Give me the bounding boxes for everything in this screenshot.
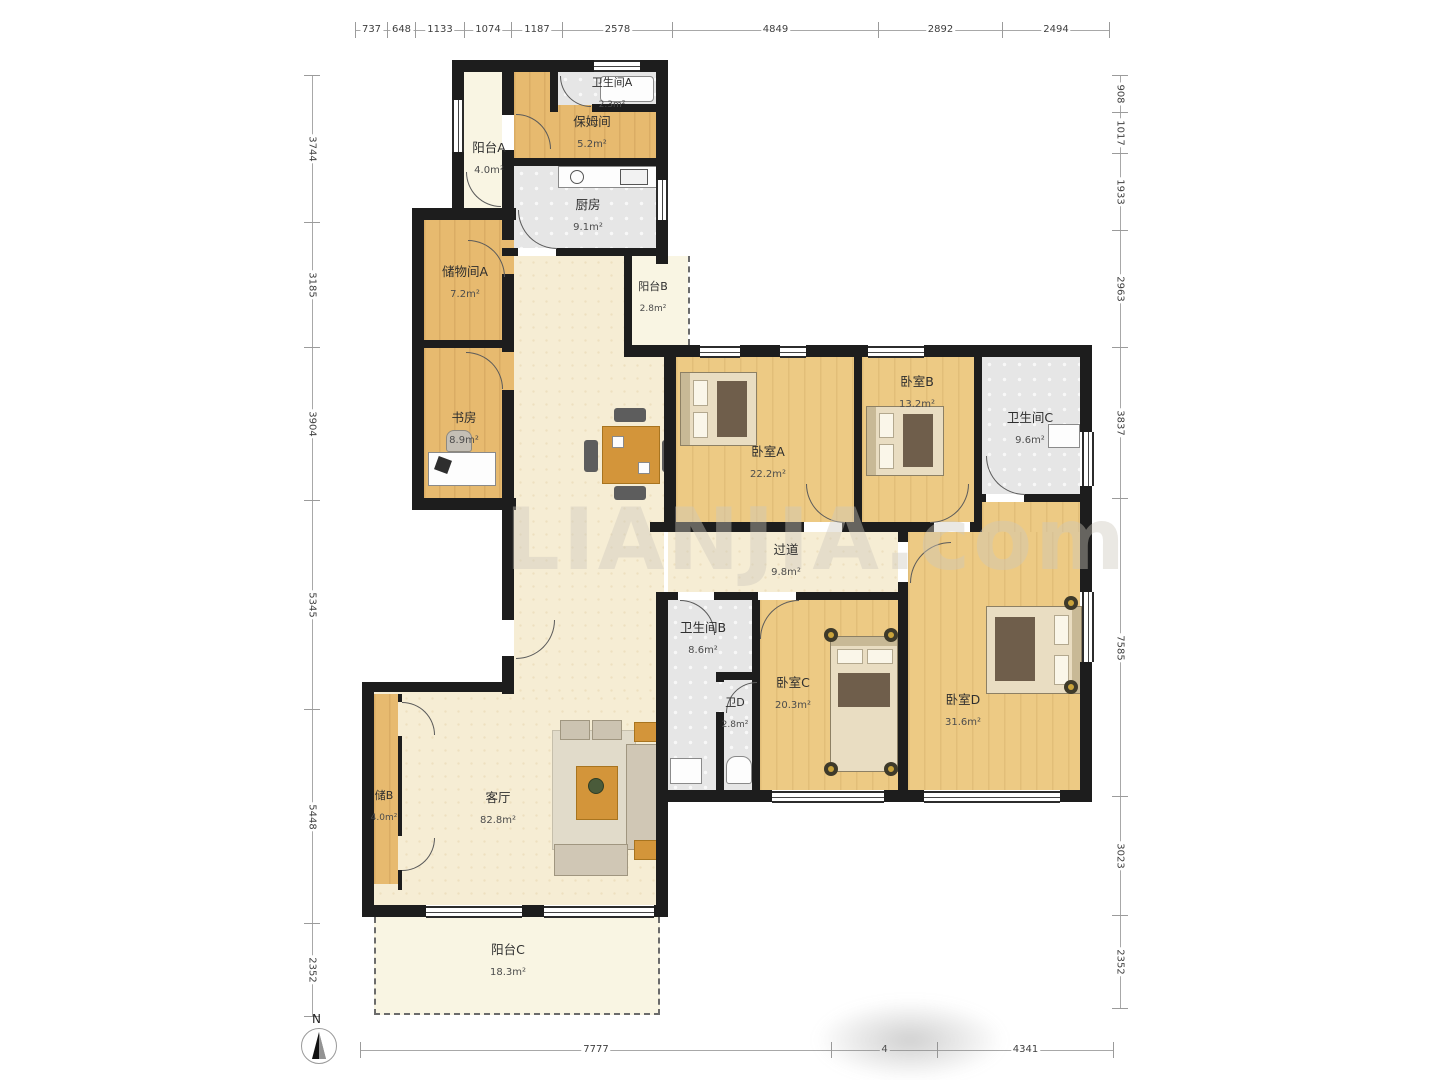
dim-label: 737 bbox=[360, 24, 383, 35]
room-label-woshi-d: 卧室D31.6m² bbox=[945, 689, 981, 731]
window bbox=[772, 791, 884, 803]
dim-segment: 737 bbox=[356, 22, 387, 38]
wall bbox=[974, 345, 982, 502]
dim-label: 2494 bbox=[1041, 24, 1070, 35]
ruler-top: 737 648 1133 1074 1187 2578 4849 2892 24… bbox=[355, 22, 1110, 38]
bed-icon bbox=[680, 372, 757, 446]
chair-icon bbox=[614, 486, 646, 500]
dim-label: 3744 bbox=[307, 134, 318, 163]
wall bbox=[714, 592, 758, 600]
wall bbox=[412, 498, 516, 510]
ottoman-icon bbox=[592, 720, 622, 740]
dim-label: 2352 bbox=[307, 955, 318, 984]
wall bbox=[398, 736, 402, 836]
dim-segment: 3023 bbox=[1112, 796, 1128, 915]
stove-icon bbox=[620, 169, 648, 185]
wall bbox=[522, 905, 544, 917]
wall bbox=[550, 60, 558, 112]
dim-segment: 1187 bbox=[511, 22, 562, 38]
wall bbox=[502, 60, 514, 115]
room-label-baomujian: 保姆间5.2m² bbox=[573, 111, 611, 153]
floor-plan-canvas: 737 648 1133 1074 1187 2578 4849 2892 24… bbox=[0, 0, 1440, 1080]
dim-segment: 3837 bbox=[1112, 347, 1128, 498]
dim-segment: 2892 bbox=[878, 22, 1002, 38]
dim-label: 7585 bbox=[1115, 633, 1126, 662]
dim-label: 3185 bbox=[307, 270, 318, 299]
dim-label: 3904 bbox=[307, 409, 318, 438]
dim-label: 3023 bbox=[1115, 841, 1126, 870]
wall bbox=[624, 345, 700, 357]
room-label-wei-d: 卫D2.8m² bbox=[722, 691, 749, 733]
wall bbox=[398, 870, 402, 890]
wall bbox=[556, 248, 668, 256]
dim-label: 1017 bbox=[1115, 118, 1126, 147]
dim-label: 4849 bbox=[761, 24, 790, 35]
sofa-icon bbox=[626, 744, 660, 850]
bed-icon bbox=[866, 406, 944, 476]
wall bbox=[884, 790, 924, 802]
wall bbox=[362, 905, 426, 917]
bedpost-icon bbox=[884, 762, 898, 776]
dim-segment: 3904 bbox=[304, 347, 320, 500]
dim-label: 2963 bbox=[1115, 274, 1126, 303]
window bbox=[426, 906, 522, 918]
window bbox=[594, 60, 640, 72]
wall bbox=[1080, 662, 1092, 802]
bedpost-icon bbox=[824, 628, 838, 642]
window bbox=[868, 346, 924, 358]
wall bbox=[1060, 790, 1092, 802]
bedpost-icon bbox=[824, 762, 838, 776]
wall bbox=[842, 522, 934, 532]
room-label-keting: 客厅82.8m² bbox=[480, 787, 516, 829]
room-label-chuwujian-a: 储物间A7.2m² bbox=[442, 261, 488, 303]
plant-icon bbox=[588, 778, 604, 794]
dim-label: 648 bbox=[390, 24, 413, 35]
wall bbox=[796, 592, 898, 600]
window bbox=[544, 906, 654, 918]
room-label-weishengjian-b: 卫生间B8.6m² bbox=[680, 617, 726, 659]
wall bbox=[624, 256, 632, 348]
room-label-chu-b: 储B4.0m² bbox=[371, 784, 398, 826]
toilet-icon bbox=[726, 756, 752, 784]
dim-segment: 1074 bbox=[464, 22, 511, 38]
wall bbox=[362, 682, 514, 692]
dim-segment: 2578 bbox=[562, 22, 672, 38]
wall bbox=[412, 208, 516, 220]
sofa-icon bbox=[554, 844, 628, 876]
wall bbox=[650, 522, 804, 532]
dim-segment: 2352 bbox=[1112, 915, 1128, 1008]
dim-segment: 648 bbox=[387, 22, 415, 38]
dim-label: 2892 bbox=[926, 24, 955, 35]
wall bbox=[664, 345, 676, 532]
room-label-weishengjian-a: 卫生间A2.3m² bbox=[592, 71, 633, 113]
wall bbox=[502, 158, 668, 166]
wall bbox=[656, 60, 668, 180]
wall bbox=[974, 494, 986, 502]
dim-label: 3837 bbox=[1115, 408, 1126, 437]
wall bbox=[970, 522, 982, 532]
wall bbox=[668, 790, 772, 802]
dim-segment: 4849 bbox=[672, 22, 878, 38]
dim-segment: 2352 bbox=[304, 923, 320, 1016]
dim-label: 2352 bbox=[1115, 947, 1126, 976]
dim-segment: 5448 bbox=[304, 709, 320, 923]
ottoman-icon bbox=[560, 720, 590, 740]
room-woshi-d-notch bbox=[982, 502, 1080, 532]
room-label-woshi-c: 卧室C20.3m² bbox=[775, 672, 811, 714]
wall bbox=[502, 248, 518, 256]
room-label-yangtai-b: 阳台B2.8m² bbox=[638, 275, 668, 317]
dim-segment: 5345 bbox=[304, 500, 320, 709]
wall bbox=[1024, 494, 1092, 502]
chair-icon bbox=[584, 440, 598, 472]
dining-table-icon bbox=[602, 426, 660, 484]
wall bbox=[502, 390, 514, 620]
bed-icon bbox=[830, 636, 898, 772]
sink-icon bbox=[670, 758, 702, 784]
plate-icon bbox=[638, 462, 650, 474]
dim-segment: 3744 bbox=[304, 76, 320, 222]
room-label-woshi-b: 卧室B13.2m² bbox=[899, 371, 935, 413]
wall bbox=[806, 345, 868, 357]
window bbox=[1082, 432, 1094, 486]
dim-label: 5345 bbox=[307, 590, 318, 619]
watermark-smudge bbox=[815, 1000, 1005, 1080]
room-label-yangtai-a: 阳台A4.0m² bbox=[472, 137, 506, 179]
wall bbox=[898, 582, 908, 802]
dim-segment: 1017 bbox=[1112, 112, 1128, 153]
room-label-chufang: 厨房9.1m² bbox=[573, 194, 603, 236]
room-foyer-upper bbox=[514, 256, 624, 346]
dim-label: 4341 bbox=[1011, 1044, 1040, 1055]
dim-label: 7777 bbox=[581, 1044, 610, 1055]
wall bbox=[452, 152, 464, 210]
dim-label: 1187 bbox=[522, 24, 551, 35]
dim-segment: 1933 bbox=[1112, 153, 1128, 230]
wall bbox=[502, 208, 514, 240]
north-label: N bbox=[312, 1012, 321, 1026]
dim-segment: 2494 bbox=[1002, 22, 1109, 38]
dim-segment: 908 bbox=[1112, 76, 1128, 112]
bedpost-icon bbox=[884, 628, 898, 642]
dim-label: 5448 bbox=[307, 802, 318, 831]
window bbox=[1082, 592, 1094, 662]
wall bbox=[854, 357, 862, 522]
plate-icon bbox=[612, 436, 624, 448]
wall bbox=[412, 340, 514, 348]
room-label-guodao: 过道9.8m² bbox=[771, 539, 801, 581]
wall bbox=[502, 274, 514, 352]
room-label-yangtai-c: 阳台C18.3m² bbox=[490, 939, 526, 981]
dim-segment: 7777 bbox=[361, 1042, 831, 1058]
balcony-edge bbox=[688, 256, 690, 345]
chair-icon bbox=[614, 408, 646, 422]
dim-segment: 2963 bbox=[1112, 230, 1128, 347]
bedpost-icon bbox=[1064, 596, 1078, 610]
wall bbox=[654, 905, 668, 917]
wall bbox=[412, 208, 424, 510]
window bbox=[452, 100, 464, 152]
window bbox=[700, 346, 740, 358]
ruler-right: 908 1017 1933 2963 3837 7585 3023 2352 bbox=[1112, 75, 1128, 1009]
dim-label: 1074 bbox=[473, 24, 502, 35]
wall bbox=[656, 220, 668, 264]
wall bbox=[656, 592, 668, 914]
wall bbox=[740, 345, 780, 357]
dim-label: 2578 bbox=[603, 24, 632, 35]
wall bbox=[452, 60, 464, 100]
dim-segment: 1133 bbox=[415, 22, 464, 38]
wall bbox=[898, 532, 908, 542]
north-arrow-icon bbox=[301, 1028, 337, 1064]
dim-label: 1133 bbox=[425, 24, 454, 35]
dim-segment: 7585 bbox=[1112, 498, 1128, 796]
room-label-woshi-a: 卧室A22.2m² bbox=[750, 441, 786, 483]
dim-segment: 3185 bbox=[304, 222, 320, 347]
ruler-left: 3744 3185 3904 5345 5448 2352 bbox=[304, 75, 320, 1017]
wall bbox=[1080, 357, 1092, 432]
dim-label: 1933 bbox=[1115, 177, 1126, 206]
dim-label: 908 bbox=[1115, 82, 1126, 105]
side-table-icon bbox=[634, 840, 658, 860]
wall bbox=[398, 694, 402, 702]
sink-icon bbox=[570, 170, 584, 184]
window bbox=[656, 180, 668, 220]
bedpost-icon bbox=[1064, 680, 1078, 694]
wall bbox=[982, 345, 1092, 357]
room-label-shufang: 书房8.9m² bbox=[449, 407, 479, 449]
window bbox=[780, 346, 806, 358]
room-label-weishengjian-c: 卫生间C9.6m² bbox=[1007, 407, 1053, 449]
window bbox=[924, 791, 1060, 803]
